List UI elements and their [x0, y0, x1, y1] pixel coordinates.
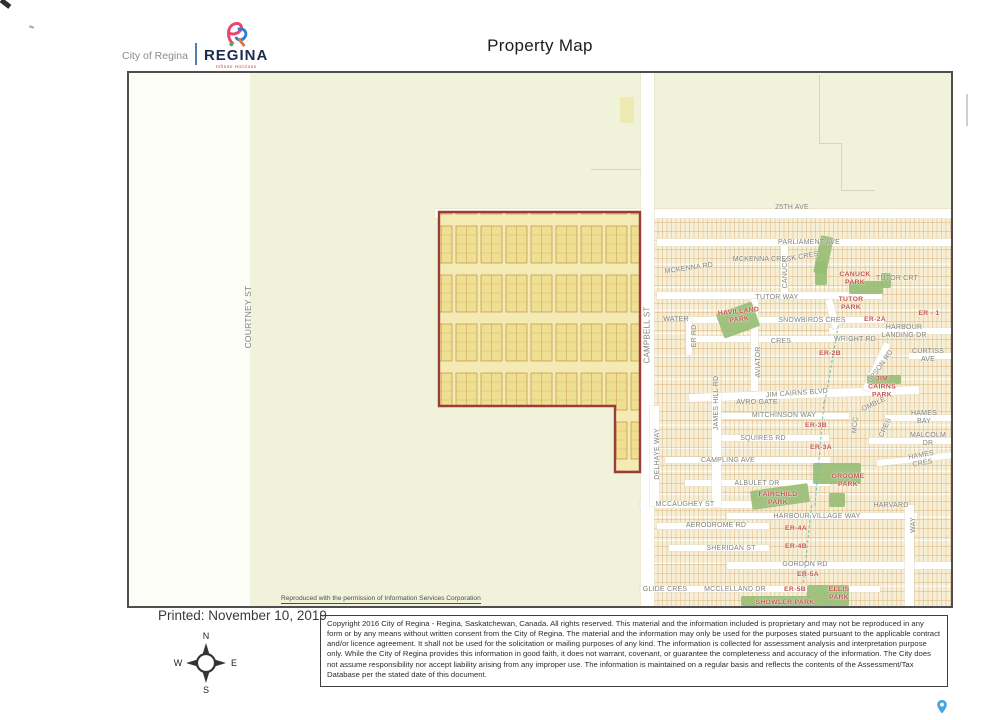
logo-brand-block: REGINA Infinite Horizons	[204, 20, 268, 69]
street-label: AERODROME RD	[686, 522, 746, 530]
street-label: WAY	[910, 517, 918, 533]
logo-divider	[195, 43, 197, 65]
map-frame: 25TH AVEPARLIAMENT AVEMCKENNA CRESK CRES…	[127, 71, 953, 608]
compass-north-label: N	[203, 631, 210, 641]
street-label: MALCOLM DR	[910, 432, 946, 448]
street-label: JIM CAIRNS PARK	[868, 375, 896, 398]
street-label: ER-4B	[785, 543, 807, 551]
compass-east-label: E	[231, 658, 237, 668]
street-label: CANUCK	[782, 258, 790, 289]
street-label: SHERIDAN ST	[706, 545, 755, 553]
street-label: MITCHINSON WAY	[752, 412, 816, 420]
street-label: WATER	[663, 316, 689, 324]
copyright-disclaimer-box: Copyright 2016 City of Regina - Regina, …	[320, 615, 948, 687]
street-label: CRES	[771, 338, 791, 346]
page-title: Property Map	[487, 36, 593, 56]
street-label: ER - 1	[918, 310, 939, 318]
scan-artifact-mark	[0, 0, 11, 9]
scanned-property-map-page: { "header": { "title": "Property Map", "…	[0, 0, 990, 720]
street-label: FAIRCHILD PARK	[759, 491, 798, 507]
street-label: 25TH AVE	[775, 204, 809, 212]
street-label: SQUIRES RD	[740, 435, 786, 443]
street-label: HARBOUR LANDING DR	[881, 324, 928, 340]
street-label: HARVARD	[874, 502, 909, 510]
street-label: ER-5A	[797, 571, 819, 579]
street-label: MCCLELLAND DR	[704, 586, 766, 594]
street-label: GROOME PARK	[832, 473, 865, 489]
street-label: AVRO GATE	[736, 399, 778, 407]
street-label: MCCAUGHEY ST	[656, 501, 715, 509]
street-label: CANUCK PARK	[839, 271, 870, 287]
street-label: ER RD	[691, 325, 699, 348]
street-label: TUTOR CRT	[876, 275, 918, 283]
street-label: PARLIAMENT AVE	[778, 239, 840, 247]
source-permission-note: Reproduced with the permission of Inform…	[281, 595, 481, 604]
street-label: CAMPLING AVE	[701, 457, 755, 465]
street-label: COURTNEY ST	[244, 286, 254, 349]
printed-date-line: Printed: November 10, 2019	[158, 608, 327, 623]
scan-artifact-mark	[966, 94, 968, 126]
street-label: SHOWLER PARK	[756, 599, 815, 606]
street-label: AVIATOR	[755, 347, 763, 378]
street-label: ER-3A	[810, 444, 832, 452]
scan-artifact-mark	[29, 25, 34, 29]
compass-south-label: S	[203, 685, 209, 695]
street-label: TUTOR PARK	[839, 296, 864, 312]
street-label: CAMPBELL ST	[642, 306, 651, 363]
location-pin-icon	[936, 699, 948, 715]
street-label: MCC	[851, 416, 860, 433]
logo-city-text: City of Regina	[122, 50, 188, 69]
street-label: ER-4A	[785, 525, 807, 533]
city-of-regina-logo: City of Regina REGINA Infinite Horizons	[122, 20, 268, 69]
street-label: CURTISS AVE	[912, 348, 944, 364]
street-label: SNOWBIRDS CRES	[778, 317, 845, 325]
logo-tagline: Infinite Horizons	[216, 64, 257, 69]
street-label: ELLIS PARK	[829, 586, 850, 602]
map-canvas: 25TH AVEPARLIAMENT AVEMCKENNA CRESK CRES…	[129, 73, 951, 606]
street-label: DELHAYE WAY	[654, 428, 662, 479]
compass-rose-icon: N S W E	[170, 629, 242, 695]
street-label: ER-2B	[819, 350, 841, 358]
street-label: TUTOR WAY	[756, 294, 799, 302]
street-label: ER-5B	[784, 586, 806, 594]
regina-ribbon-r-icon	[219, 20, 253, 48]
street-label: GLIDE CRES	[643, 586, 687, 594]
street-label: HARBOUR VILLAGE WAY	[773, 513, 860, 521]
logo-brand-text: REGINA	[204, 48, 268, 63]
street-label: WRIGHT RD	[834, 336, 876, 344]
compass-west-label: W	[174, 658, 183, 668]
street-label: ER-3B	[805, 422, 827, 430]
street-label: JAMES HILL RD	[713, 376, 721, 430]
street-label: HAMES BAY	[911, 410, 938, 426]
street-label: ALBULET DR	[734, 480, 779, 488]
street-label: GORDON RD	[782, 561, 827, 569]
property-boundary-polygon	[439, 212, 640, 472]
street-label: ER-2A	[864, 316, 886, 324]
